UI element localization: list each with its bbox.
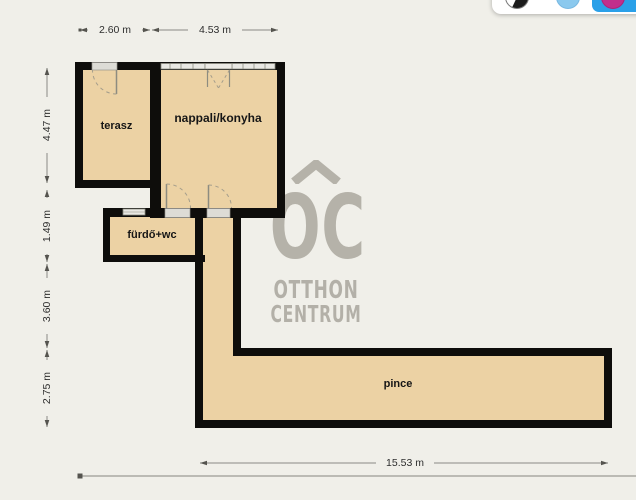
furdo-top-wall: [103, 208, 153, 217]
room-label-pince: pince: [352, 378, 444, 390]
dimension-left-1: 4.47 m: [40, 97, 54, 153]
theme-toolbar: [492, 0, 636, 14]
dimension-bottom-1: 15.53 m: [376, 456, 434, 470]
pince-bottom-wall: [195, 420, 612, 428]
pince-right-wall: [604, 348, 612, 428]
half-black-white-circle-icon[interactable]: [505, 0, 529, 9]
terasz-bottom-wall: [75, 180, 161, 188]
watermark-line2: CENTRUM: [270, 304, 362, 327]
magenta-circle-icon[interactable]: [601, 0, 625, 9]
dimension-left-3: 3.60 m: [40, 278, 54, 334]
dimension-left-2: 1.49 m: [40, 198, 54, 254]
floorplan-canvas: OC OTTHON CENTRUM: [0, 0, 636, 500]
nappali-bottom-wall: [150, 208, 285, 218]
terasz-left-wall: [75, 62, 83, 188]
active-theme-highlight: [592, 0, 636, 12]
room-label-nappali-konyha: nappali/konyha: [158, 111, 278, 125]
corridor-floor: [203, 218, 233, 420]
watermark-line1: OTTHON: [270, 277, 362, 302]
dimension-left-4: 2.75 m: [40, 360, 54, 416]
page-divider: [78, 474, 636, 479]
dimension-top-1: 2.60 m: [88, 23, 142, 37]
terasz-nappali-divider-wall: [150, 62, 161, 218]
nappali-floor: [161, 70, 277, 208]
room-label-furdo-wc: fürdő+wc: [108, 229, 196, 241]
pince-top-wall: [233, 348, 612, 356]
furdo-bottom-wall: [103, 255, 205, 262]
corridor-left-wall: [195, 208, 203, 428]
room-label-terasz: terasz: [83, 120, 150, 132]
top-wall: [75, 62, 285, 70]
blue-circle-icon[interactable]: [556, 0, 580, 9]
corridor-right-wall: [233, 218, 241, 356]
nappali-right-wall: [277, 62, 285, 218]
dimension-top-2: 4.53 m: [188, 23, 242, 37]
